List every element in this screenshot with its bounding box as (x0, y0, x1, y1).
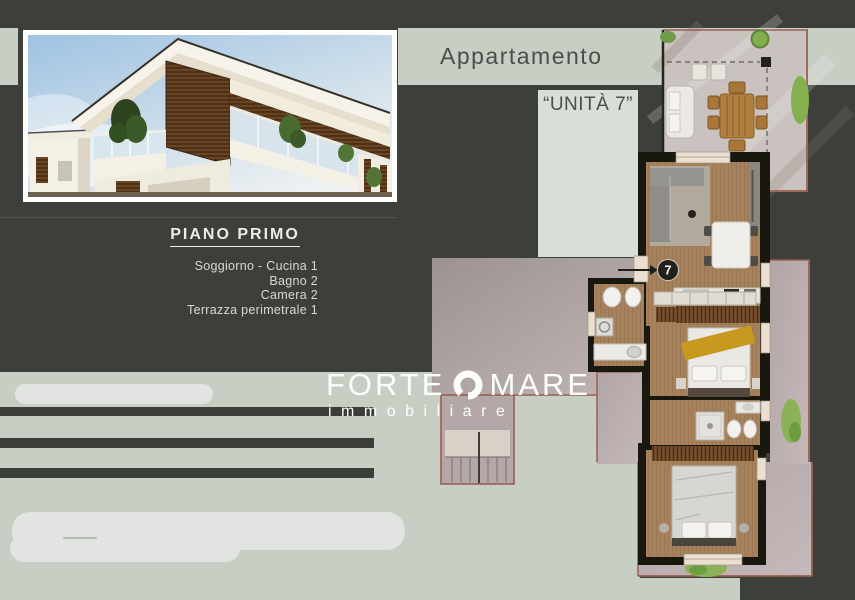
bidet (625, 287, 641, 307)
basin (742, 403, 754, 411)
pillow (682, 522, 706, 538)
headboard (672, 538, 736, 546)
outdoor-sofa (666, 86, 694, 138)
side-table (659, 523, 669, 533)
bidet (744, 420, 757, 438)
dining-table (712, 222, 750, 268)
plant (752, 31, 769, 48)
basin (627, 347, 641, 358)
plant (660, 31, 676, 43)
unit-marker-label: 7 (664, 263, 671, 278)
logo-word-left: FORTE (326, 370, 446, 400)
nightstand (676, 378, 686, 389)
hedge (791, 76, 809, 124)
ring-icon (453, 370, 483, 400)
nightstand (752, 378, 760, 389)
coffee-table (688, 210, 696, 218)
brochure-page: Appartamento “UNITÀ 7” (0, 0, 855, 600)
headboard (688, 388, 750, 397)
agency-logo: FORTE MARE immobiliare (326, 370, 591, 421)
side-table (739, 523, 749, 533)
pillow (708, 522, 732, 538)
pillow (721, 366, 746, 381)
pillow (692, 366, 717, 381)
washing-machine (596, 318, 613, 336)
wardrobe (654, 292, 756, 305)
floor-plan: 7 (0, 0, 855, 600)
column (761, 57, 771, 67)
logo-subtitle: immobiliare (328, 403, 591, 421)
toilet (727, 420, 741, 438)
clothes-rack (652, 446, 754, 461)
logo-word-right: MARE (490, 370, 592, 400)
toilet (603, 287, 621, 307)
clothes-rack (656, 307, 754, 322)
